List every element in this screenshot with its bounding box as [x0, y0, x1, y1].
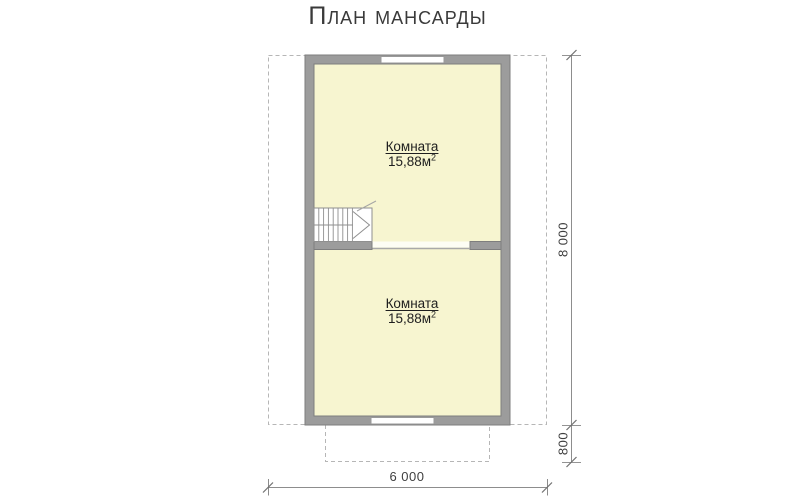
room-name: Комната	[332, 296, 492, 311]
room-label-top: Комната 15,88м2	[332, 139, 492, 169]
door-opening	[373, 242, 470, 248]
floor-plan-drawing	[0, 0, 795, 496]
dimension-height-total: 8 000	[556, 213, 571, 267]
dimension-width-total: 6 000	[347, 469, 467, 484]
dimension-porch-depth: 800	[556, 422, 571, 466]
room-area: 15,88м2	[332, 154, 492, 169]
room-area: 15,88м2	[332, 311, 492, 326]
floor-plan-page: План мансарды	[0, 0, 795, 496]
window-top	[381, 57, 444, 64]
window-bottom	[371, 418, 434, 425]
interior-wall-right-segment	[470, 242, 501, 250]
room-label-bottom: Комната 15,88м2	[332, 296, 492, 326]
porch-outline	[326, 425, 490, 462]
room-name: Комната	[332, 139, 492, 154]
interior-wall-left-segment	[314, 242, 372, 250]
